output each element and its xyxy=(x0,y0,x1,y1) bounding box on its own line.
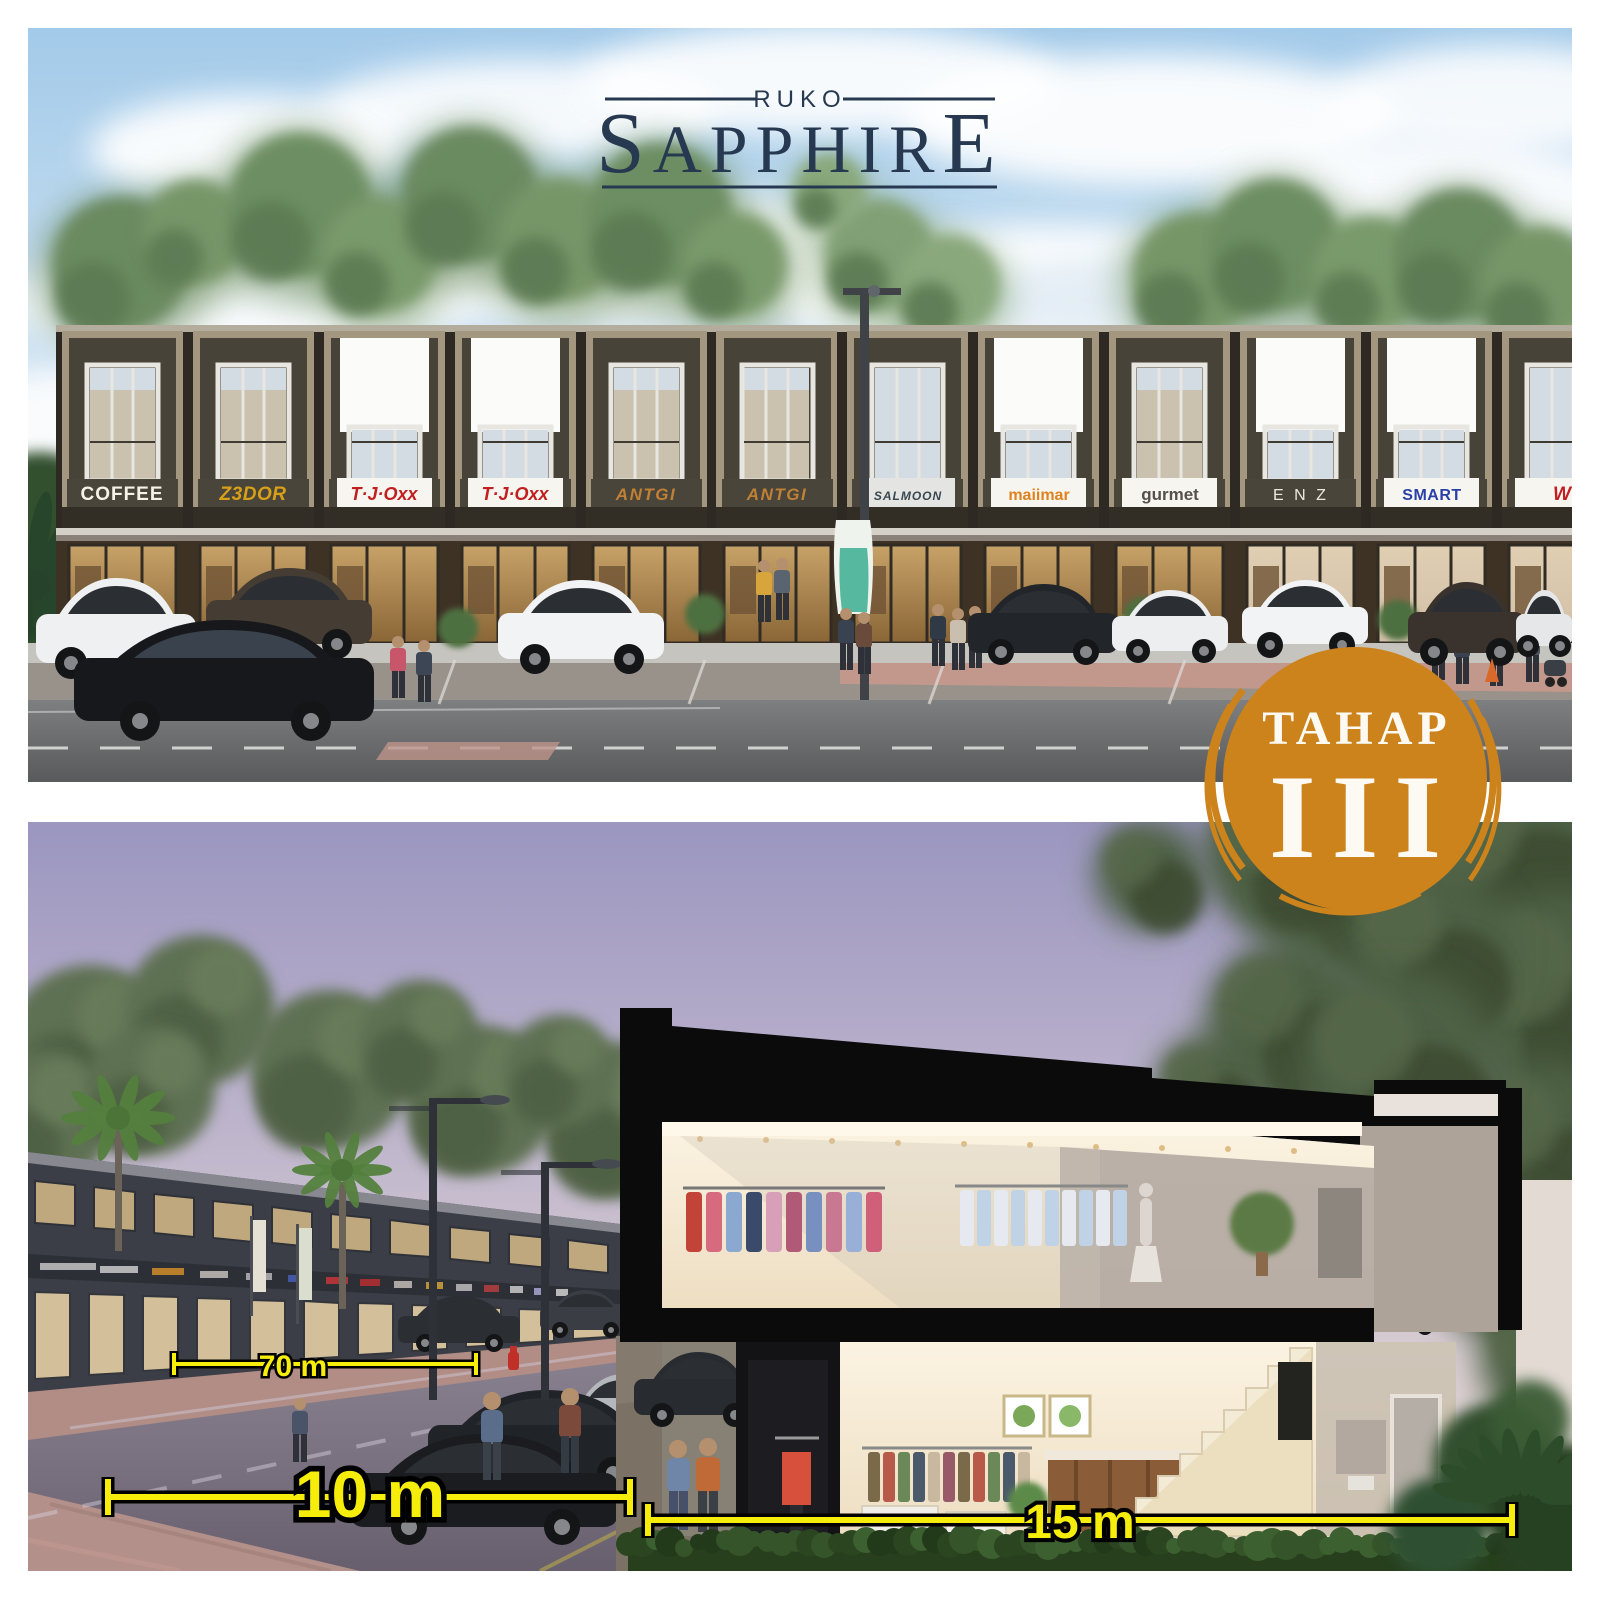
svg-text:T·J·Oxx: T·J·Oxx xyxy=(350,484,418,504)
svg-text:III: III xyxy=(1269,750,1457,883)
svg-text:TAHAP: TAHAP xyxy=(1262,702,1451,755)
svg-text:maiimar: maiimar xyxy=(1008,487,1069,504)
svg-text:10 m: 10 m xyxy=(295,1457,445,1531)
svg-text:SMART: SMART xyxy=(1402,487,1461,504)
svg-text:E N Z: E N Z xyxy=(1273,487,1329,504)
svg-text:W: W xyxy=(1553,484,1573,505)
svg-text:Z3DOR: Z3DOR xyxy=(219,484,287,505)
svg-text:ANTGI: ANTGI xyxy=(746,485,807,504)
svg-text:RUKO: RUKO xyxy=(753,86,846,113)
svg-text:T·J·Oxx: T·J·Oxx xyxy=(481,484,549,504)
svg-text:15 m: 15 m xyxy=(1025,1496,1134,1549)
svg-text:ANTGI: ANTGI xyxy=(615,485,676,504)
svg-text:SALMOON: SALMOON xyxy=(874,489,942,503)
svg-text:COFFEE: COFFEE xyxy=(80,484,163,505)
svg-text:70 m: 70 m xyxy=(259,1350,327,1383)
svg-text:gurmet: gurmet xyxy=(1141,485,1199,504)
